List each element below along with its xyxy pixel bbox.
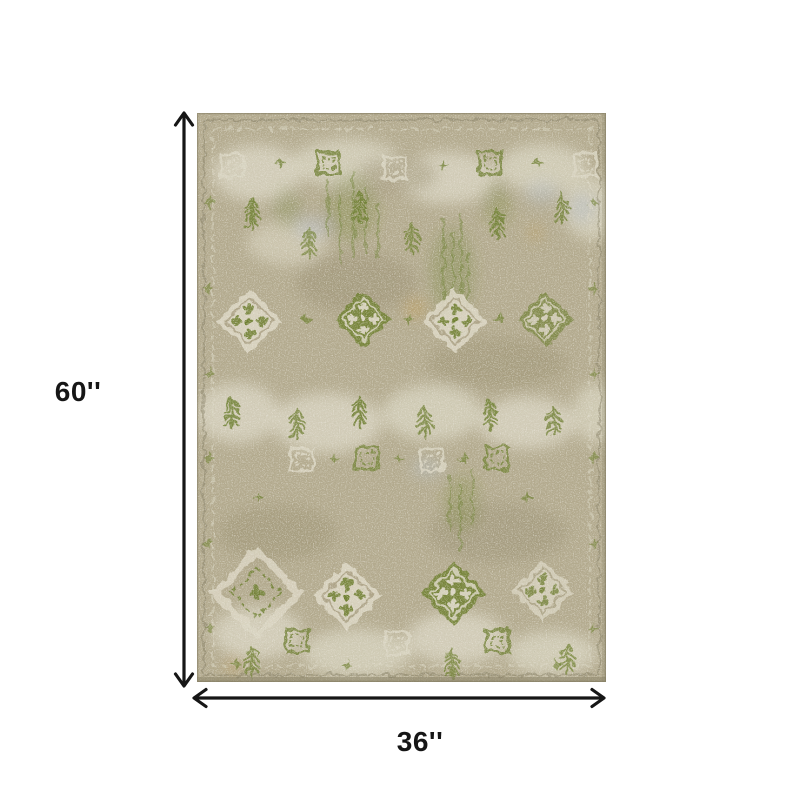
product-dimension-diagram: 60'' 36'' bbox=[0, 0, 800, 800]
rug-field bbox=[197, 113, 606, 682]
height-dimension-label: 60'' bbox=[28, 374, 128, 410]
rug-image bbox=[197, 113, 606, 682]
width-dimension-label: 36'' bbox=[370, 724, 470, 760]
width-dimension-arrow bbox=[194, 690, 604, 707]
height-dimension-arrow bbox=[176, 113, 193, 686]
